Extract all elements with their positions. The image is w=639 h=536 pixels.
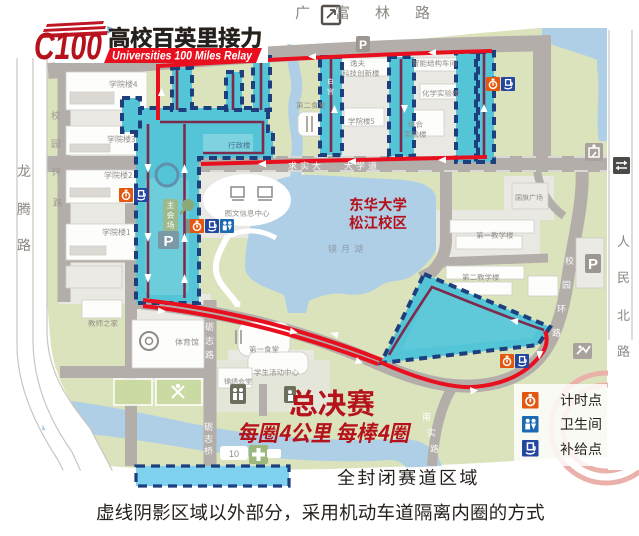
svg-text:P: P bbox=[163, 233, 173, 250]
svg-text:10: 10 bbox=[229, 449, 239, 459]
svg-text:P: P bbox=[359, 38, 367, 52]
svg-text:Universities 100 Miles Relay: Universities 100 Miles Relay bbox=[112, 49, 253, 63]
svg-text:P: P bbox=[588, 256, 598, 273]
svg-text:C100: C100 bbox=[34, 26, 102, 68]
